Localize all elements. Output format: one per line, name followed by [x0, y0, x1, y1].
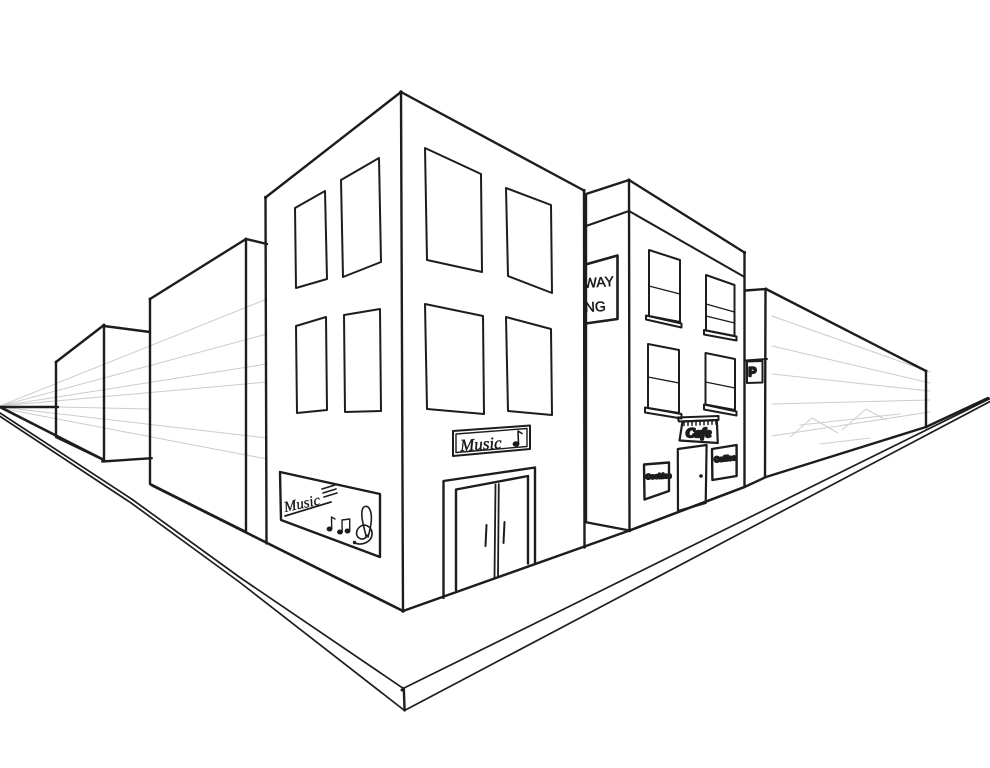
- svg-text:Music: Music: [282, 493, 322, 517]
- svg-text:WAY: WAY: [583, 273, 615, 291]
- svg-text:NG: NG: [584, 298, 606, 315]
- svg-text:Cookies: Cookies: [646, 473, 672, 481]
- svg-text:Cafe: Cafe: [686, 425, 712, 440]
- svg-text:Music: Music: [458, 433, 502, 455]
- svg-text:Coffee: Coffee: [714, 455, 736, 464]
- svg-text:P: P: [749, 365, 757, 379]
